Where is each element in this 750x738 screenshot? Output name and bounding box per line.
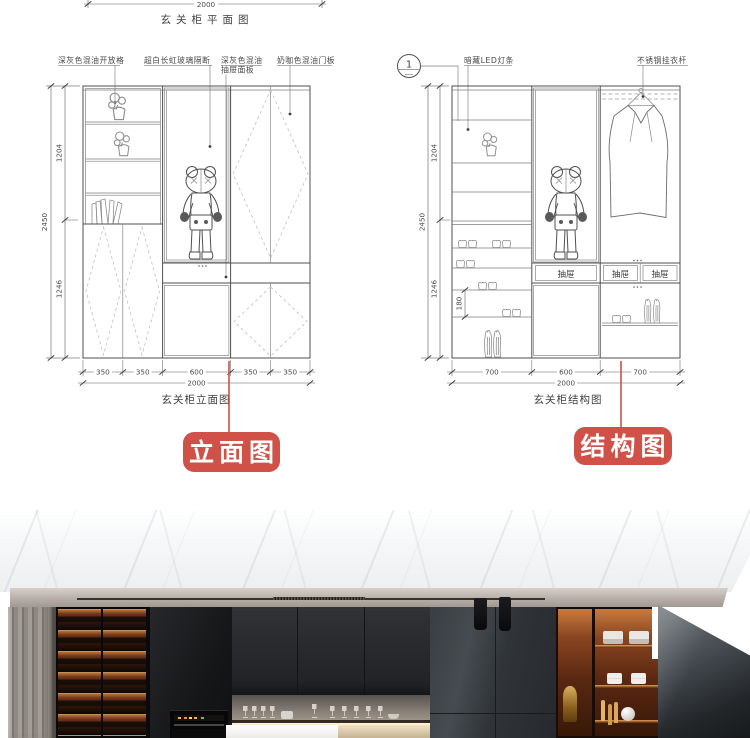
stemware (330, 706, 335, 718)
oven-handle (174, 724, 224, 726)
elev-dim-350a: 350 (96, 368, 110, 377)
plan-caption: 玄关柜平面图 (161, 13, 254, 26)
structure-cabinet: 180 抽屉 抽屉 抽屉 (452, 86, 680, 358)
elevation-height-total: 2450 (40, 212, 49, 231)
track-spotlight (474, 598, 487, 630)
cabinet-seam (430, 713, 556, 714)
dish-stack (631, 673, 646, 684)
elevation-badge-label: 立面图 (189, 438, 279, 467)
countertop (226, 725, 338, 738)
structure-height-lower: 1246 (430, 279, 439, 298)
track-spotlight (499, 597, 511, 631)
oven-display-lights (178, 717, 181, 719)
detail-bubble-number: 1 (406, 60, 412, 71)
structure-drawing: 1 暗藏LED灯条 不锈钢挂衣杆 (398, 55, 689, 466)
elevation-caption: 玄关柜立面图 (162, 393, 231, 406)
elevation-drawing: 深灰色混油开放格 超白长虹玻璃隔断 深灰色混油 抽屉面板 奶咖色混油门板 (40, 55, 335, 472)
oven-door (172, 729, 226, 738)
decanter (312, 704, 317, 718)
callout-clothes-rod: 不锈钢挂衣杆 (637, 55, 687, 65)
decor-sphere (621, 707, 635, 721)
fluted-pilaster (8, 607, 56, 738)
elev-dim-350c: 350 (244, 368, 258, 377)
decor-statue (563, 686, 577, 722)
callout-led-strip: 暗藏LED灯条 (464, 55, 514, 65)
cabinet-seam (297, 607, 298, 695)
display-shelving (556, 607, 660, 738)
stemware (354, 706, 359, 718)
elev-dim-350b: 350 (136, 368, 150, 377)
elevation-height-upper: 1204 (55, 143, 64, 162)
elev-dim-600: 600 (190, 368, 204, 377)
callout-door-panel: 奶咖色混油门板 (277, 55, 335, 65)
struct-dim-700b: 700 (633, 368, 647, 377)
stemware (366, 706, 371, 718)
elev-dim-total: 2000 (187, 379, 206, 388)
ceiling-vent (273, 597, 365, 600)
elevation-cabinet (83, 86, 310, 358)
dish-stack (607, 673, 622, 684)
elevation-vertical-dims: 2450 1204 1246 (40, 83, 80, 360)
structure-shelf-gap: 180 (455, 296, 464, 310)
structure-height-total: 2450 (418, 212, 427, 231)
wine-rack-column (58, 609, 101, 736)
display-shelf (595, 645, 658, 648)
oven-control-panel (174, 715, 224, 721)
drawer-label-middle: 抽屉 (557, 269, 574, 280)
decor-bottles (601, 700, 605, 721)
elev-dim-350d: 350 (283, 368, 297, 377)
callout-open-shelf: 深灰色混油开放格 (58, 55, 124, 65)
structure-vertical-dims: 2450 1204 1246 (418, 83, 451, 360)
marble-ceiling (0, 510, 750, 592)
elevation-height-lower: 1246 (55, 279, 64, 298)
base-cabinets (430, 607, 556, 738)
stemware (243, 706, 248, 718)
upper-cabinets (232, 607, 430, 695)
cup (281, 711, 293, 719)
display-shelf (595, 685, 658, 688)
structure-bottom-dims: 700 600 700 2000 (447, 360, 685, 388)
structure-badge: 结构图 (574, 361, 672, 465)
elevation-bottom-dims: 350 350 600 350 350 2000 (78, 360, 315, 388)
wine-rack (56, 607, 150, 738)
structure-height-upper: 1204 (430, 143, 439, 162)
stemware (270, 706, 275, 718)
drawer-label-right-2: 抽屉 (651, 269, 668, 280)
struct-dim-700a: 700 (485, 368, 499, 377)
plan-view: 2000 玄关柜平面图 (84, 0, 326, 26)
cabinet-seam (495, 607, 496, 738)
stemware (261, 706, 266, 718)
oven (170, 710, 228, 738)
stemware (378, 706, 383, 718)
stemware (252, 706, 257, 718)
callout-drawer-panel-2: 抽屉面板 (221, 65, 254, 75)
struct-dim-600: 600 (559, 368, 573, 377)
structure-caption: 玄关柜结构图 (534, 393, 603, 406)
storage-box (603, 631, 623, 644)
struct-dim-total: 2000 (557, 379, 576, 388)
wine-rack-column (103, 609, 146, 736)
product-detail-image: 2000 玄关柜平面图 深灰色混油开放格 超白长虹玻璃隔断 深灰色混油 抽屉面板… (0, 0, 750, 738)
callout-glass-partition: 超白长虹玻璃隔断 (144, 55, 210, 65)
callout-drawer-panel-1: 深灰色混油 (221, 55, 262, 65)
kitchen-render-photo (0, 510, 750, 738)
cabinet-seam (364, 607, 365, 695)
plan-total-dim: 2000 (197, 0, 216, 9)
storage-box (629, 631, 649, 644)
structure-badge-label: 结构图 (580, 432, 670, 461)
drawer-label-right-1: 抽屉 (612, 269, 629, 280)
cad-drawings: 2000 玄关柜平面图 深灰色混油开放格 超白长虹玻璃隔断 深灰色混油 抽屉面板… (0, 0, 750, 510)
stemware (342, 706, 347, 718)
